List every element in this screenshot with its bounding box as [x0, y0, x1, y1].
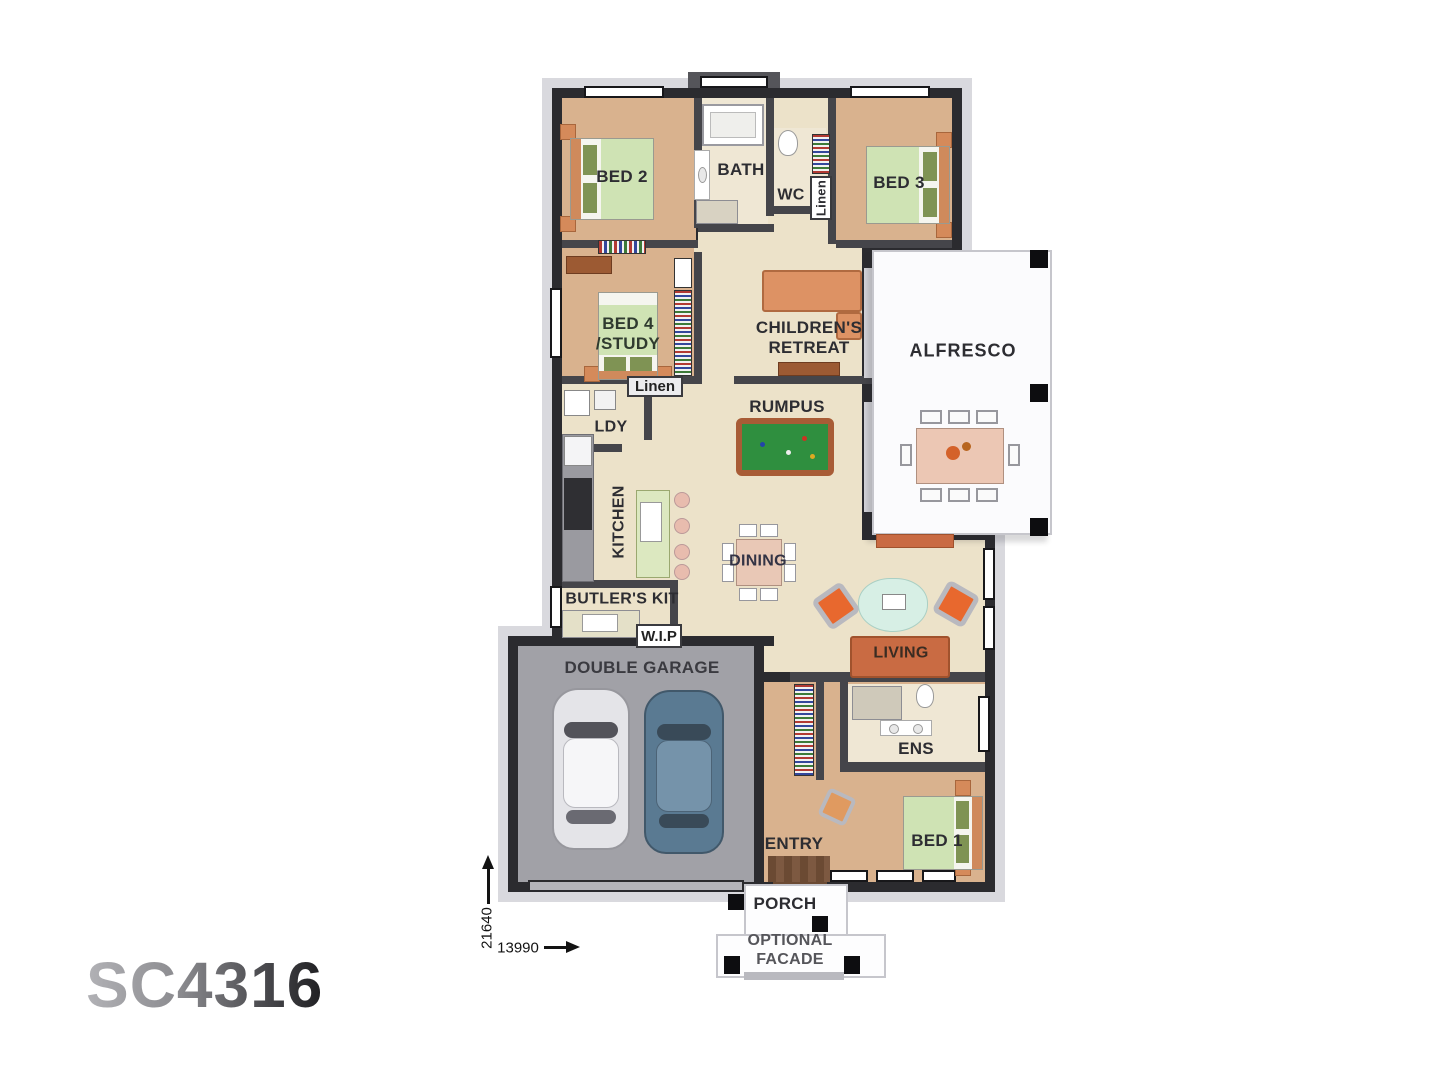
pool-ball — [810, 454, 815, 459]
dining-chair — [722, 543, 734, 561]
depth-arrow-stem — [487, 868, 490, 904]
wall — [836, 240, 952, 248]
bed2-bed — [570, 138, 654, 220]
wall — [644, 384, 652, 440]
window — [922, 870, 956, 882]
bed-pillow — [604, 357, 626, 371]
bed-pillow — [956, 801, 969, 829]
ens-vanity — [880, 720, 932, 736]
bath-vanity — [694, 150, 710, 200]
wall — [734, 376, 872, 384]
alfresco-chair — [948, 410, 970, 424]
laundry-tub — [594, 390, 616, 410]
stool — [674, 518, 690, 534]
bed2-robe — [598, 240, 646, 254]
bath-shower — [696, 200, 738, 224]
car-white — [552, 688, 630, 850]
window — [550, 288, 562, 358]
car-rear-window — [659, 814, 709, 828]
wall — [840, 762, 985, 772]
dining-table — [736, 539, 782, 586]
island-sink — [640, 502, 662, 542]
stool — [674, 492, 690, 508]
sink — [698, 167, 707, 183]
stool — [674, 564, 690, 580]
table-decor — [946, 446, 960, 460]
pool-table — [736, 418, 834, 476]
stool — [674, 544, 690, 560]
wall — [766, 206, 822, 214]
alfresco-chair — [976, 488, 998, 502]
facade-post — [844, 956, 860, 974]
car-roof — [563, 738, 619, 808]
bed-pillow — [923, 188, 937, 217]
dining-chair — [760, 524, 778, 537]
alfresco-chair — [920, 410, 942, 424]
facade-post — [724, 956, 740, 974]
width-arrow-stem — [544, 946, 568, 949]
table-decor — [962, 442, 971, 451]
bed-pillow — [923, 152, 937, 181]
living-sofa — [850, 636, 950, 678]
bed-pillow — [956, 835, 969, 863]
laundry-appliance — [564, 390, 590, 416]
coffee-table — [882, 594, 906, 610]
plan-code: SC4316 — [86, 948, 323, 1022]
bed-cover — [599, 305, 657, 355]
wall — [694, 252, 702, 380]
depth-arrow-icon — [482, 855, 494, 869]
wc-toilet — [778, 130, 798, 156]
window — [700, 76, 768, 88]
bed4-robe — [674, 290, 692, 376]
bathtub — [702, 104, 764, 146]
width-dimension: 13990 — [497, 940, 539, 957]
pool-ball — [802, 436, 807, 441]
wall — [698, 224, 774, 232]
bed1-bed — [903, 796, 983, 870]
alfresco-post — [1030, 518, 1048, 536]
sliding-door — [864, 402, 872, 512]
porch-post — [812, 916, 828, 932]
dining-chair — [760, 588, 778, 601]
window — [550, 586, 562, 628]
bed-cover — [867, 147, 919, 223]
walk-in-robe — [794, 684, 814, 776]
retreat-sofa — [762, 270, 862, 312]
window — [850, 86, 930, 98]
alfresco-post — [1030, 250, 1048, 268]
bed4-bed — [598, 292, 658, 380]
bed4-sidetable — [656, 366, 672, 382]
tv-unit — [778, 362, 840, 376]
alfresco-chair — [976, 410, 998, 424]
bed1-sidetable — [955, 780, 971, 796]
dining-chair — [739, 524, 757, 537]
dining-chair — [784, 543, 796, 561]
window — [983, 606, 995, 650]
window — [978, 696, 990, 752]
garage-top-wall — [508, 636, 774, 646]
pool-ball — [786, 450, 791, 455]
dining-chair — [722, 564, 734, 582]
bed-cover — [601, 139, 653, 219]
bed-pillow — [630, 357, 652, 371]
car-windshield — [564, 722, 618, 738]
wall — [670, 580, 678, 624]
alfresco-chair — [948, 488, 970, 502]
retreat-sofa-chaise — [836, 312, 862, 340]
bed-head — [599, 371, 657, 379]
porch-floor — [744, 884, 848, 936]
bed3-bed — [866, 146, 950, 224]
bed-head — [972, 797, 982, 869]
pool-ball — [760, 442, 765, 447]
facade-step — [744, 972, 844, 980]
wall — [766, 98, 774, 216]
bed-cover — [904, 797, 954, 869]
window — [876, 870, 914, 882]
floor-plan: BED 2 BATH WC Linen BED 3 BED 4 /STUDY C… — [0, 0, 1440, 1080]
car-rear-window — [566, 810, 616, 824]
ens-shower — [852, 686, 902, 720]
width-arrow-icon — [566, 941, 580, 953]
cooktop — [564, 478, 592, 530]
bed4-desk — [566, 256, 612, 274]
wall — [816, 682, 824, 780]
window — [983, 548, 995, 600]
garage-door — [528, 880, 744, 892]
car-blue — [644, 690, 724, 854]
sink — [913, 724, 923, 734]
sideboard — [876, 534, 954, 548]
depth-dimension: 21640 — [479, 907, 496, 949]
alfresco-chair — [900, 444, 912, 466]
dining-chair — [784, 564, 796, 582]
window — [830, 870, 868, 882]
alfresco-post — [1030, 384, 1048, 402]
car-windshield — [657, 724, 711, 740]
bed-head — [571, 139, 581, 219]
sink — [889, 724, 899, 734]
ens-toilet — [916, 684, 934, 708]
sliding-door — [864, 268, 872, 378]
window — [584, 86, 664, 98]
bed4-robe-door — [674, 258, 692, 288]
alfresco-chair — [1008, 444, 1020, 466]
alfresco-table — [916, 428, 1004, 484]
dining-chair — [739, 588, 757, 601]
alfresco-chair — [920, 488, 942, 502]
wc-linen-closet — [812, 134, 830, 174]
porch-post — [728, 894, 744, 910]
wall — [840, 682, 848, 770]
bed3-sidetable — [936, 222, 952, 238]
bed-pillow — [583, 145, 597, 175]
fridge — [564, 436, 592, 466]
car-roof — [656, 740, 712, 812]
bed-head — [939, 147, 949, 223]
bed-pillow — [583, 183, 597, 213]
butlers-sink — [582, 614, 618, 632]
tub-inner — [710, 112, 756, 138]
entry-landing — [768, 856, 830, 882]
